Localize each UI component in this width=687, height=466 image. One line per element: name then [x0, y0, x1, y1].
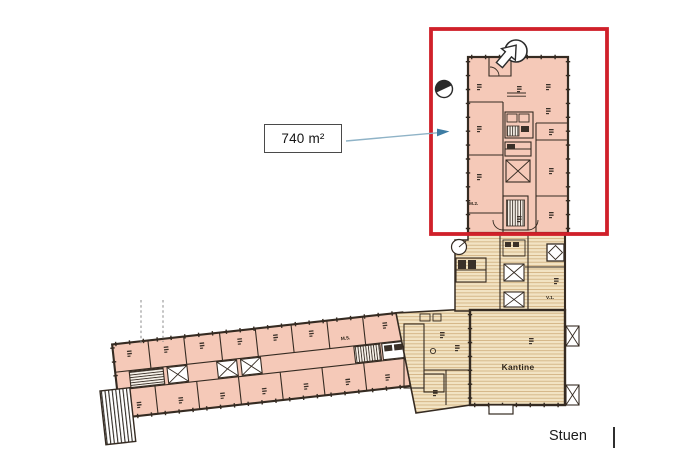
annotation-arrow — [346, 129, 450, 141]
junction-south — [396, 309, 470, 413]
kantine-room: Kantine — [470, 310, 579, 414]
kantine-outline — [470, 310, 565, 405]
entrance-stoop — [489, 405, 513, 414]
upper-wing: M.2. — [468, 57, 568, 233]
stairwell — [129, 368, 165, 388]
entrance-ramp — [100, 388, 136, 445]
area-label-text: 740 m² — [281, 131, 324, 146]
skylight — [547, 244, 564, 261]
floor-plan: M.5. — [0, 0, 687, 466]
lower-wing: M.5. — [112, 312, 410, 418]
annotation-arrow-head — [437, 129, 450, 137]
kantine-label: Kantine — [502, 362, 535, 372]
room-label-m5: M.5. — [341, 335, 351, 342]
junction-core: V.1. — [452, 233, 566, 311]
section-marker-icon — [433, 78, 456, 101]
annotation-arrow-line — [346, 133, 437, 141]
room-label-m2: M.2. — [469, 201, 478, 207]
area-label-box: 740 m² — [264, 124, 342, 153]
slide: M.5. — [0, 0, 687, 466]
stairwell — [354, 344, 382, 363]
room-label-v1: V.1. — [546, 295, 554, 301]
floor-caption: Stuen — [549, 428, 587, 444]
caption-divider — [613, 427, 615, 448]
